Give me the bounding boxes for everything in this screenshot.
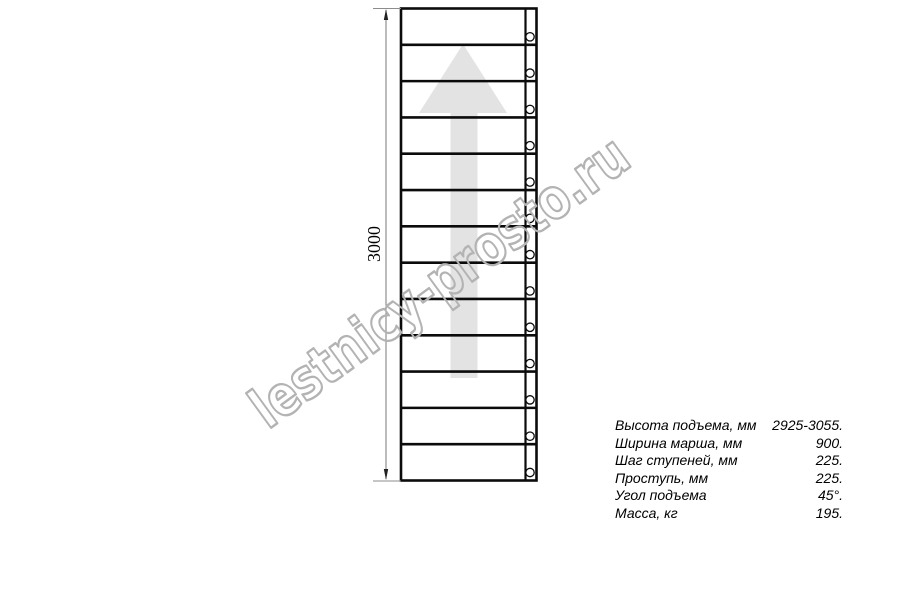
spec-label: Шаг ступеней, мм: [615, 452, 738, 470]
watermark-text: lestnicy-prosto.ru: [238, 123, 642, 441]
spec-label: Проступь, мм: [615, 470, 708, 488]
technical-drawing-page: 3000 lestnicy-prosto.ru Высота подъема, …: [0, 0, 900, 600]
spec-label: Высота подъема, мм: [615, 417, 757, 435]
spec-row: Угол подъема45°.: [615, 487, 843, 505]
bolt-circle: [526, 432, 534, 440]
spec-value: 2925-3055.: [772, 417, 843, 435]
bolt-circle: [526, 33, 534, 41]
bolt-circle: [526, 396, 534, 404]
spec-value: 900.: [816, 435, 843, 453]
spec-table: Высота подъема, мм2925-3055.Ширина марша…: [615, 417, 843, 522]
bolt-circle: [526, 69, 534, 77]
spec-value: 45°.: [818, 487, 843, 505]
bolt-circle: [526, 105, 534, 113]
spec-value: 225.: [816, 452, 843, 470]
bolt-circle: [526, 287, 534, 295]
spec-row: Шаг ступеней, мм225.: [615, 452, 843, 470]
dimension-label: 3000: [364, 226, 384, 262]
bolt-circle: [526, 142, 534, 150]
arrow-head: [419, 44, 507, 113]
spec-label: Ширина марша, мм: [615, 435, 742, 453]
bolt-circle: [526, 323, 534, 331]
spec-value: 195.: [816, 505, 843, 523]
bolt-circle: [526, 359, 534, 367]
dimension-3000: 3000: [364, 9, 401, 482]
spec-label: Угол подъема: [615, 487, 707, 505]
spec-row: Высота подъема, мм2925-3055.: [615, 417, 843, 435]
bolt-circle: [526, 468, 534, 476]
spec-label: Масса, кг: [615, 505, 678, 523]
spec-value: 225.: [816, 470, 843, 488]
dimension-arrowhead-down-icon: [384, 469, 388, 480]
spec-row: Проступь, мм225.: [615, 470, 843, 488]
spec-row: Ширина марша, мм900.: [615, 435, 843, 453]
dimension-arrowhead-up-icon: [384, 9, 388, 20]
spec-row: Масса, кг195.: [615, 505, 843, 523]
